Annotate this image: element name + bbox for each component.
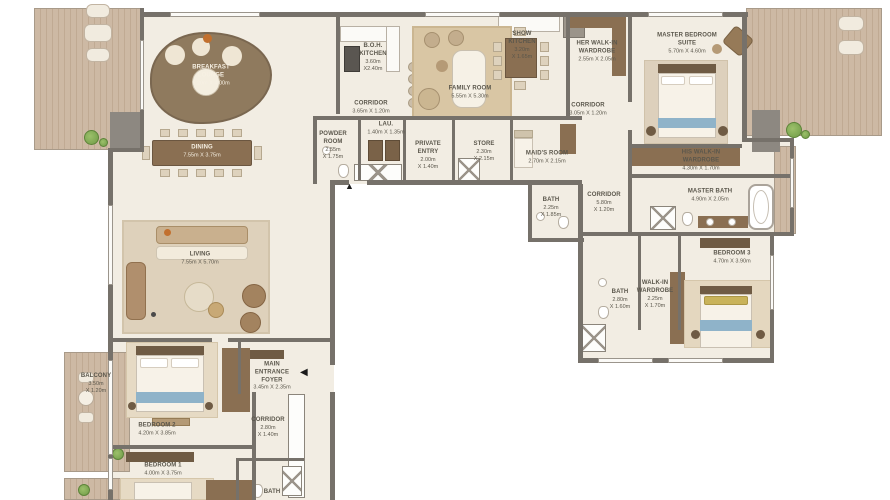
wall	[313, 116, 317, 184]
dining-chair	[540, 42, 549, 52]
nightstand	[128, 402, 136, 410]
shaft-block	[110, 112, 142, 152]
kitchen-counter	[386, 26, 400, 72]
wardrobe-cabinet	[222, 348, 250, 412]
pillow	[704, 296, 748, 305]
wall	[108, 148, 144, 152]
sink	[598, 278, 607, 287]
room-label-living: LIVING7.55m X 5.70m	[181, 252, 218, 267]
pillow	[140, 358, 168, 368]
dining-chair	[540, 56, 549, 66]
wall	[252, 392, 256, 500]
lounge-chair	[84, 24, 112, 42]
plant	[786, 122, 802, 138]
window	[648, 12, 723, 17]
armchair	[418, 88, 440, 110]
room-label-boh-kitchen: B.O.H. KITCHEN3.60m X2.40m	[359, 43, 386, 73]
window	[108, 205, 113, 285]
wardrobe-cabinet	[560, 124, 576, 154]
wall	[578, 184, 583, 363]
wall	[228, 338, 334, 342]
room-label-his-wardrobe: HIS WALK-IN WARDROBE4.30m X 1.70m	[682, 150, 720, 173]
wall	[330, 392, 335, 500]
room-label-family-room: FAMILY ROOM5.55m X 5.30m	[449, 86, 492, 101]
main-entrance-arrow-icon: ◀	[300, 368, 308, 378]
wall	[528, 238, 584, 242]
room-label-bath-3: BATH2.80m X 1.60m	[610, 289, 630, 311]
room-label-laundry: LAU.1.40m X 1.35m	[367, 122, 404, 137]
window	[108, 458, 113, 490]
armchair	[240, 312, 261, 333]
room-label-corridor-right: CORRIDOR5.80m X 1.20m	[587, 192, 620, 214]
pillow	[514, 130, 533, 138]
stove	[344, 46, 360, 72]
wall	[528, 184, 532, 242]
shower	[582, 324, 606, 352]
lounge-chair	[838, 40, 864, 55]
plant	[801, 130, 810, 139]
balcony-chair	[78, 412, 94, 423]
floor-plan: ◀ ▲ BREAKFAST LOUNGE5.20m X 4.00m DINING…	[0, 0, 890, 500]
chaise-lounge	[126, 262, 146, 320]
wall	[236, 458, 304, 461]
shower	[282, 466, 302, 496]
toilet	[682, 212, 693, 226]
shower	[650, 206, 676, 230]
plant	[84, 130, 99, 145]
dining-chair	[178, 129, 188, 137]
lounge-chair	[86, 4, 110, 18]
dining-chair	[196, 169, 206, 177]
room-label-her-wardrobe: HER WALK-IN WARDROBE2.55m X 2.05m	[576, 41, 617, 64]
accent-pillow	[164, 229, 171, 236]
room-label-bath-bottom: BATH	[264, 489, 281, 497]
window	[140, 40, 144, 110]
floor-lamp	[151, 312, 156, 317]
dining-chair	[493, 42, 502, 52]
pillow	[661, 76, 685, 85]
lounge-chair	[86, 48, 110, 62]
wall	[367, 180, 582, 185]
room-label-bedroom-2: BEDROOM 24.20m X 3.85m	[138, 423, 175, 438]
bed-headboard	[658, 64, 716, 73]
room-label-main-foyer: MAIN ENTRANCE FOYER3.45m X 2.35m	[253, 362, 290, 393]
room-label-maids-bath: BATH2.25m X 1.85m	[541, 197, 561, 219]
wall	[238, 342, 241, 394]
pillow	[689, 76, 713, 85]
window	[425, 12, 500, 17]
dining-chair	[254, 146, 262, 160]
dining-chair	[160, 169, 170, 177]
wall	[452, 120, 455, 180]
pillow	[171, 358, 199, 368]
wall	[108, 445, 254, 449]
wall	[108, 338, 212, 342]
room-label-show-kitchen: SHOW KITCHEN3.20m X 1.65m	[508, 31, 535, 61]
room-label-balcony: BALCONY3.50m X 1.20m	[81, 373, 111, 395]
shaft-block	[752, 110, 780, 152]
window	[170, 12, 260, 17]
nightstand	[718, 126, 728, 136]
wall	[678, 236, 681, 330]
wall	[630, 174, 790, 178]
room-label-master-suite: MASTER BEDROOM SUITE5.70m X 4.60m	[657, 33, 717, 56]
window	[770, 255, 774, 310]
dining-chair	[514, 81, 526, 90]
nightstand	[646, 126, 656, 136]
console-table	[248, 350, 284, 359]
bed-headboard	[700, 286, 752, 294]
nightstand	[205, 402, 213, 410]
toilet	[598, 306, 609, 319]
room-label-maids-room: MAID'S ROOM2.70m X 2.15m	[526, 151, 568, 166]
dryer	[385, 140, 400, 161]
plant	[78, 484, 90, 496]
wall	[510, 120, 513, 180]
window	[668, 358, 723, 363]
side-table	[208, 302, 224, 318]
room-label-powder-room: POWDER ROOM2.55m X 1.75m	[319, 131, 347, 161]
wall	[236, 461, 239, 500]
toilet	[338, 164, 349, 178]
room-label-breakfast-lounge: BREAKFAST LOUNGE5.20m X 4.00m	[192, 65, 230, 88]
window	[790, 158, 794, 208]
armchair	[242, 284, 266, 308]
laundry-counter	[354, 164, 402, 181]
ottoman	[436, 60, 448, 72]
dresser	[126, 452, 194, 462]
cushion	[165, 45, 185, 65]
wall	[742, 12, 747, 142]
bed-runner	[658, 118, 716, 128]
dining-chair	[540, 70, 549, 80]
armchair	[448, 30, 464, 46]
lounge-chair	[838, 16, 864, 31]
window	[598, 358, 653, 363]
dining-chair	[214, 169, 224, 177]
washer	[368, 140, 383, 161]
dining-chair	[160, 129, 170, 137]
room-label-store: STORE2.30m X 2.15m	[473, 141, 494, 163]
room-label-corridor-top-left: CORRIDOR3.65m X 1.20m	[352, 101, 389, 116]
wall	[313, 116, 582, 120]
room-label-corridor-top-right: CORRIDOR3.05m X 1.20m	[569, 103, 606, 118]
dining-chair	[196, 129, 206, 137]
dresser	[700, 238, 750, 248]
dining-chair	[493, 70, 502, 80]
wall	[630, 144, 742, 148]
bathtub-basin	[753, 190, 769, 224]
bed	[134, 482, 192, 500]
wall	[358, 120, 361, 180]
plant	[112, 448, 124, 460]
nightstand	[756, 330, 765, 339]
room-label-dining: DINING7.55m X 3.75m	[183, 145, 220, 160]
cushion	[222, 46, 242, 66]
room-label-bedroom-1: BEDROOM 14.00m X 3.75m	[144, 463, 181, 478]
bed-runner	[700, 320, 752, 331]
nightstand	[691, 330, 700, 339]
private-entry-arrow-icon: ▲	[345, 182, 354, 191]
dining-chair	[232, 129, 242, 137]
wall	[336, 12, 340, 114]
wall	[628, 12, 632, 102]
room-label-master-bath: MASTER BATH4.90m X 2.05m	[688, 189, 732, 204]
room-label-bedroom-3: BEDROOM 34.70m X 3.90m	[713, 251, 750, 266]
bed-runner	[136, 392, 204, 403]
plant	[99, 138, 108, 147]
room-label-private-entry: PRIVATE ENTRY2.00m X 1.40m	[415, 141, 441, 171]
wall	[578, 232, 774, 236]
armchair	[424, 32, 440, 48]
wall	[742, 138, 794, 142]
room-label-walkin-wardrobe: WALK-IN WARDROBE2.25m X 1.70m	[637, 280, 673, 310]
dining-chair	[493, 56, 502, 66]
wardrobe-cabinet	[206, 480, 252, 500]
dining-chair	[232, 169, 242, 177]
accent-pillow	[203, 34, 212, 43]
dining-chair	[214, 129, 224, 137]
sink	[728, 218, 736, 226]
dining-chair	[178, 169, 188, 177]
bed-headboard	[136, 346, 204, 355]
sink	[706, 218, 714, 226]
room-label-corridor-bottom: CORRIDOR2.80m X 1.40m	[251, 417, 284, 439]
